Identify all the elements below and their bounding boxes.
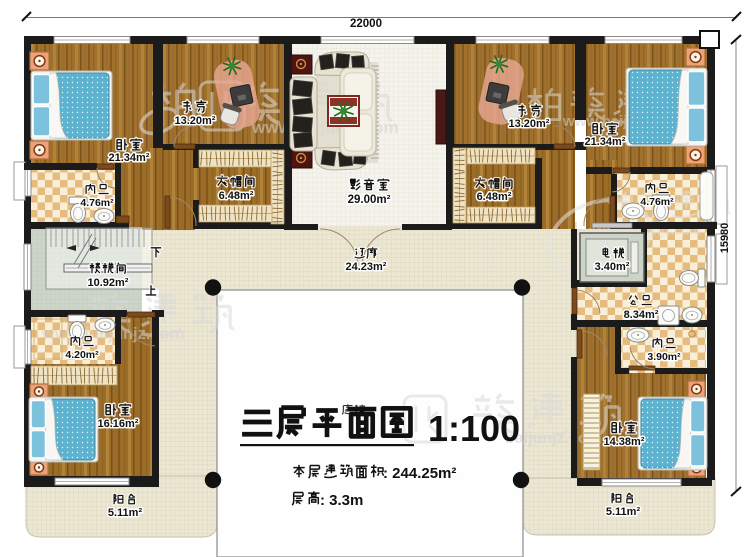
svg-text:1:100: 1:100 bbox=[428, 408, 520, 449]
svg-text:21.34m²: 21.34m² bbox=[109, 152, 150, 164]
svg-text:: 3.3m: : 3.3m bbox=[320, 492, 363, 509]
svg-text:16.16m²: 16.16m² bbox=[98, 418, 139, 430]
svg-text:15980: 15980 bbox=[719, 223, 731, 254]
svg-text:4.76m²: 4.76m² bbox=[80, 197, 114, 209]
svg-text:21.34m²: 21.34m² bbox=[585, 136, 626, 148]
svg-text:4.20m²: 4.20m² bbox=[65, 349, 99, 361]
svg-text:3.40m²: 3.40m² bbox=[595, 261, 630, 273]
svg-text:4.76m²: 4.76m² bbox=[640, 196, 674, 208]
svg-text:5.11m²: 5.11m² bbox=[108, 507, 143, 519]
svg-text:22000: 22000 bbox=[350, 18, 382, 30]
svg-text:10.92m²: 10.92m² bbox=[88, 277, 129, 289]
svg-text:14.38m²: 14.38m² bbox=[604, 436, 645, 448]
svg-text:13.20m²: 13.20m² bbox=[509, 118, 550, 130]
svg-text:5.11m²: 5.11m² bbox=[606, 506, 641, 518]
svg-text:6.48m²: 6.48m² bbox=[477, 191, 512, 203]
svg-text:29.00m²: 29.00m² bbox=[348, 194, 391, 206]
svg-text:8.34m²: 8.34m² bbox=[624, 309, 659, 321]
svg-text:24.23m²: 24.23m² bbox=[346, 261, 387, 273]
svg-text:: 244.25m²: : 244.25m² bbox=[383, 465, 456, 482]
svg-text:3.90m²: 3.90m² bbox=[647, 351, 681, 363]
svg-text:13.20m²: 13.20m² bbox=[175, 115, 216, 127]
svg-text:6.48m²: 6.48m² bbox=[219, 190, 254, 202]
